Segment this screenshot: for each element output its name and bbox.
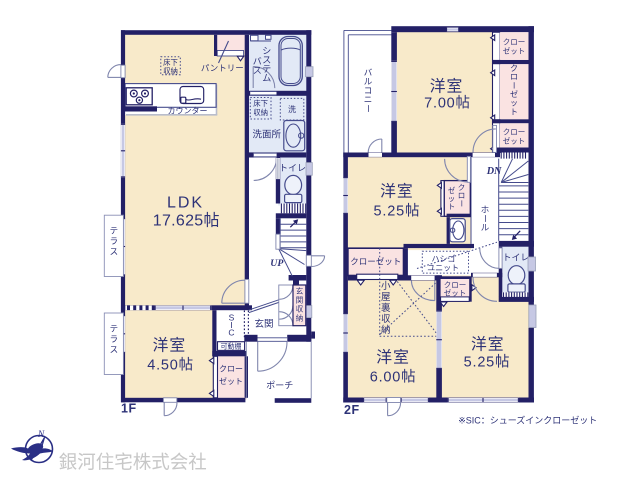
svg-text:ー: ー	[363, 104, 373, 113]
svg-text:洋室: 洋室	[376, 348, 410, 366]
svg-text:ラ: ラ	[110, 334, 119, 344]
svg-text:クロー: クロー	[503, 37, 526, 46]
svg-text:ロ: ロ	[510, 73, 518, 82]
svg-text:収納: 収納	[253, 108, 268, 117]
svg-text:玄関: 玄関	[254, 318, 273, 330]
svg-text:小: 小	[381, 281, 391, 292]
svg-text:ス: ス	[110, 345, 119, 355]
svg-text:ト: ト	[510, 107, 518, 116]
svg-text:納: 納	[296, 313, 304, 323]
svg-text:ゼット: ゼット	[219, 376, 243, 386]
svg-text:ク: ク	[510, 64, 518, 73]
svg-text:トイレ: トイレ	[502, 252, 529, 262]
svg-text:裏: 裏	[381, 302, 391, 314]
svg-text:ラ: ラ	[110, 236, 119, 246]
svg-text:洗面所: 洗面所	[252, 129, 281, 141]
svg-text:屋: 屋	[381, 292, 391, 303]
svg-text:ロ: ロ	[458, 191, 466, 200]
svg-text:トイレ: トイレ	[279, 163, 306, 173]
svg-text:※SIC：シューズインクローゼット: ※SIC：シューズインクローゼット	[458, 414, 597, 425]
svg-text:収: 収	[296, 305, 304, 314]
svg-text:クロー: クロー	[503, 127, 526, 136]
svg-text:ー: ー	[457, 200, 466, 208]
svg-text:ッ: ッ	[510, 99, 518, 108]
svg-text:ム: ム	[262, 73, 271, 83]
svg-text:収納: 収納	[163, 67, 178, 76]
svg-text:洗: 洗	[288, 104, 296, 114]
svg-text:UP: UP	[270, 258, 284, 269]
svg-text:収: 収	[381, 313, 391, 325]
svg-text:ゼット: ゼット	[444, 288, 467, 298]
svg-text:ゼット: ゼット	[503, 45, 526, 55]
svg-text:可動棚: 可動棚	[221, 342, 242, 351]
svg-text:ポーチ: ポーチ	[266, 380, 293, 390]
svg-text:N: N	[37, 430, 45, 440]
svg-text:2F: 2F	[344, 403, 360, 417]
svg-text:ゼ: ゼ	[510, 89, 518, 99]
svg-text:クローゼット: クローゼット	[350, 257, 401, 267]
svg-text:ゼット: ゼット	[503, 135, 526, 145]
svg-text:洋室: 洋室	[380, 182, 414, 200]
svg-text:テ: テ	[110, 324, 119, 334]
svg-text:テ: テ	[110, 226, 119, 236]
svg-text:5.25帖: 5.25帖	[374, 202, 421, 219]
svg-text:7.00帖: 7.00帖	[424, 95, 471, 112]
svg-text:DN: DN	[486, 166, 502, 177]
svg-text:関: 関	[296, 296, 304, 305]
svg-text:ー: ー	[480, 214, 490, 223]
svg-text:納: 納	[381, 324, 391, 336]
svg-text:ユニット: ユニット	[427, 263, 459, 272]
svg-text:ホ: ホ	[481, 205, 490, 215]
svg-text:ニ: ニ	[364, 95, 373, 105]
svg-text:洋室: 洋室	[430, 77, 464, 95]
svg-text:クロー: クロー	[219, 365, 243, 374]
svg-text:ト: ト	[448, 202, 456, 211]
svg-text:5.25帖: 5.25帖	[464, 353, 511, 370]
svg-text:洋室: 洋室	[471, 335, 505, 353]
svg-text:ー: ー	[509, 81, 518, 89]
svg-text:C: C	[228, 328, 234, 338]
svg-text:パントリー: パントリー	[201, 63, 244, 73]
svg-text:ス: ス	[253, 66, 262, 76]
svg-text:洋室: 洋室	[153, 336, 187, 354]
svg-text:カウンター: カウンター	[168, 107, 208, 116]
svg-text:銀河住宅株式会社: 銀河住宅株式会社	[59, 451, 207, 472]
svg-text:17.625帖: 17.625帖	[153, 212, 220, 230]
svg-text:玄: 玄	[296, 286, 304, 296]
svg-text:LDK: LDK	[167, 195, 204, 212]
svg-text:ル: ル	[481, 223, 490, 233]
svg-text:ス: ス	[110, 247, 119, 257]
svg-text:6.00帖: 6.00帖	[370, 368, 417, 385]
svg-text:4.50帖: 4.50帖	[147, 357, 194, 374]
svg-text:1F: 1F	[121, 402, 137, 416]
